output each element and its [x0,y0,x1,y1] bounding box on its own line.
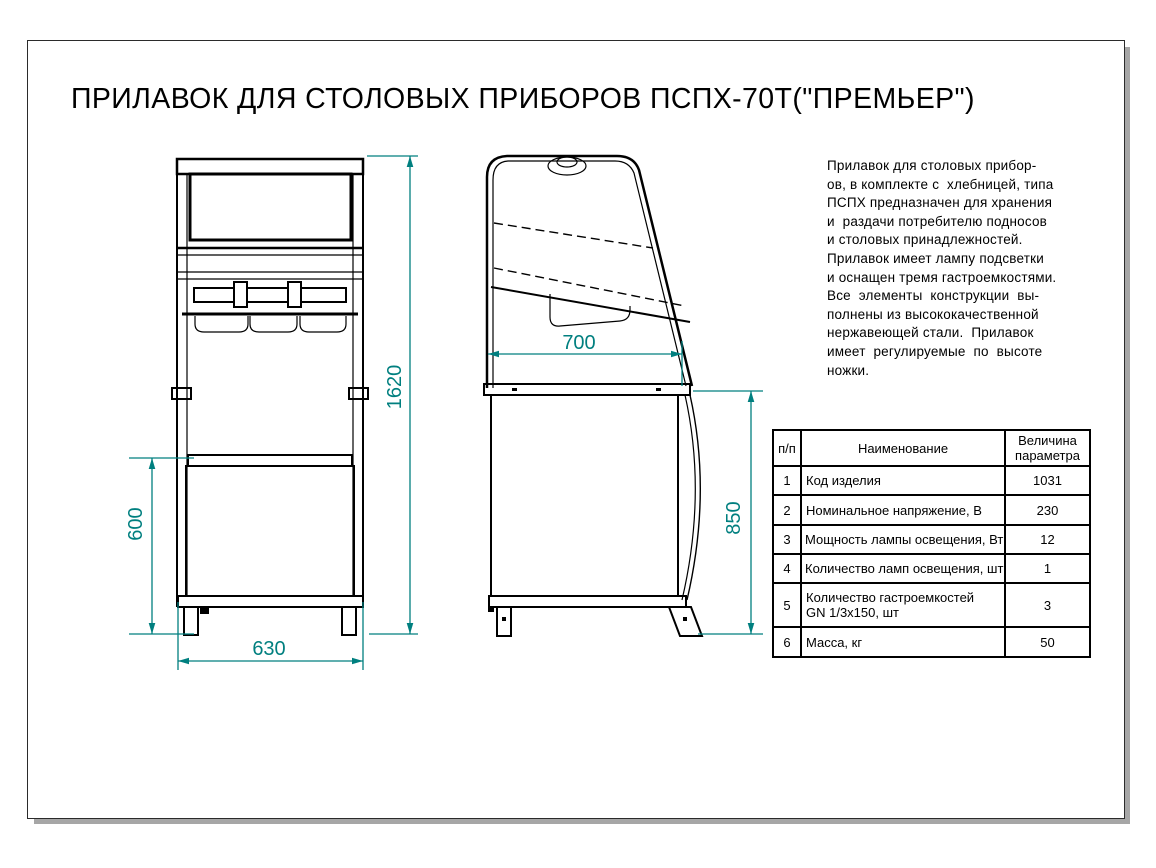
dim-label-total-height: 1620 [384,365,406,410]
table-row: 1 Код изделия 1031 [773,466,1090,495]
front-bracket-rail [194,288,346,302]
row-name: Количество гастроемкостей GN 1/3x150, шт [801,583,1005,627]
dim-label-width: 630 [252,638,285,660]
side-right-leg [669,607,702,636]
row-name: Мощность лампы освещения, Вт [801,525,1005,554]
front-gastro-containers [195,316,346,332]
side-lamp-fixture [548,157,586,175]
table-header-row: п/п Наименование Величина параметра [773,430,1090,466]
row-name: Код изделия [801,466,1005,495]
spec-table: п/п Наименование Величина параметра 1 Ко… [772,429,1091,658]
dim-label-lower-height: 600 [125,507,147,540]
side-view-drawing [484,156,702,636]
dimension-lines [129,156,763,670]
row-value: 3 [1005,583,1090,627]
row-num: 2 [773,495,801,525]
front-cabinet [186,466,354,596]
row-num: 5 [773,583,801,627]
front-back-rail [188,455,352,466]
col-header-value: Величина параметра [1005,430,1090,466]
technical-drawing: 1620 600 630 700 850 [111,141,791,686]
row-num: 6 [773,627,801,657]
front-left-leg [184,607,198,635]
row-name: Количество ламп освещения, шт [801,554,1005,583]
front-right-leg [342,607,356,635]
col-header-name: Наименование [801,430,1005,466]
dim-label-top-width: 700 [562,332,595,354]
dim-label-counter-height: 850 [723,501,745,534]
table-row: 3 Мощность лампы освещения, Вт 12 [773,525,1090,554]
table-row: 4 Количество ламп освещения, шт 1 [773,554,1090,583]
row-num: 4 [773,554,801,583]
table-row: 5 Количество гастроемкостей GN 1/3x150, … [773,583,1090,627]
row-value: 1031 [1005,466,1090,495]
document-page: ПРИЛАВОК ДЛЯ СТОЛОВЫХ ПРИБОРОВ ПСПХ-70Т(… [27,40,1125,819]
col-header-num: п/п [773,430,801,466]
row-value: 50 [1005,627,1090,657]
description-text: Прилавок для столовых прибор- ов, в комп… [827,157,1105,380]
front-lamp-panel [190,174,351,240]
front-view-drawing [172,159,368,635]
row-value: 230 [1005,495,1090,525]
row-value: 12 [1005,525,1090,554]
table-row: 6 Масса, кг 50 [773,627,1090,657]
row-num: 1 [773,466,801,495]
front-top-bar [177,159,363,174]
page-title: ПРИЛАВОК ДЛЯ СТОЛОВЫХ ПРИБОРОВ ПСПХ-70Т(… [71,85,975,115]
row-name: Номинальное напряжение, В [801,495,1005,525]
side-cabinet [491,395,678,596]
row-name: Масса, кг [801,627,1005,657]
table-row: 2 Номинальное напряжение, В 230 [773,495,1090,525]
row-value: 1 [1005,554,1090,583]
row-num: 3 [773,525,801,554]
dimension-labels: 1620 600 630 700 850 [125,332,745,660]
side-left-leg [497,607,511,636]
